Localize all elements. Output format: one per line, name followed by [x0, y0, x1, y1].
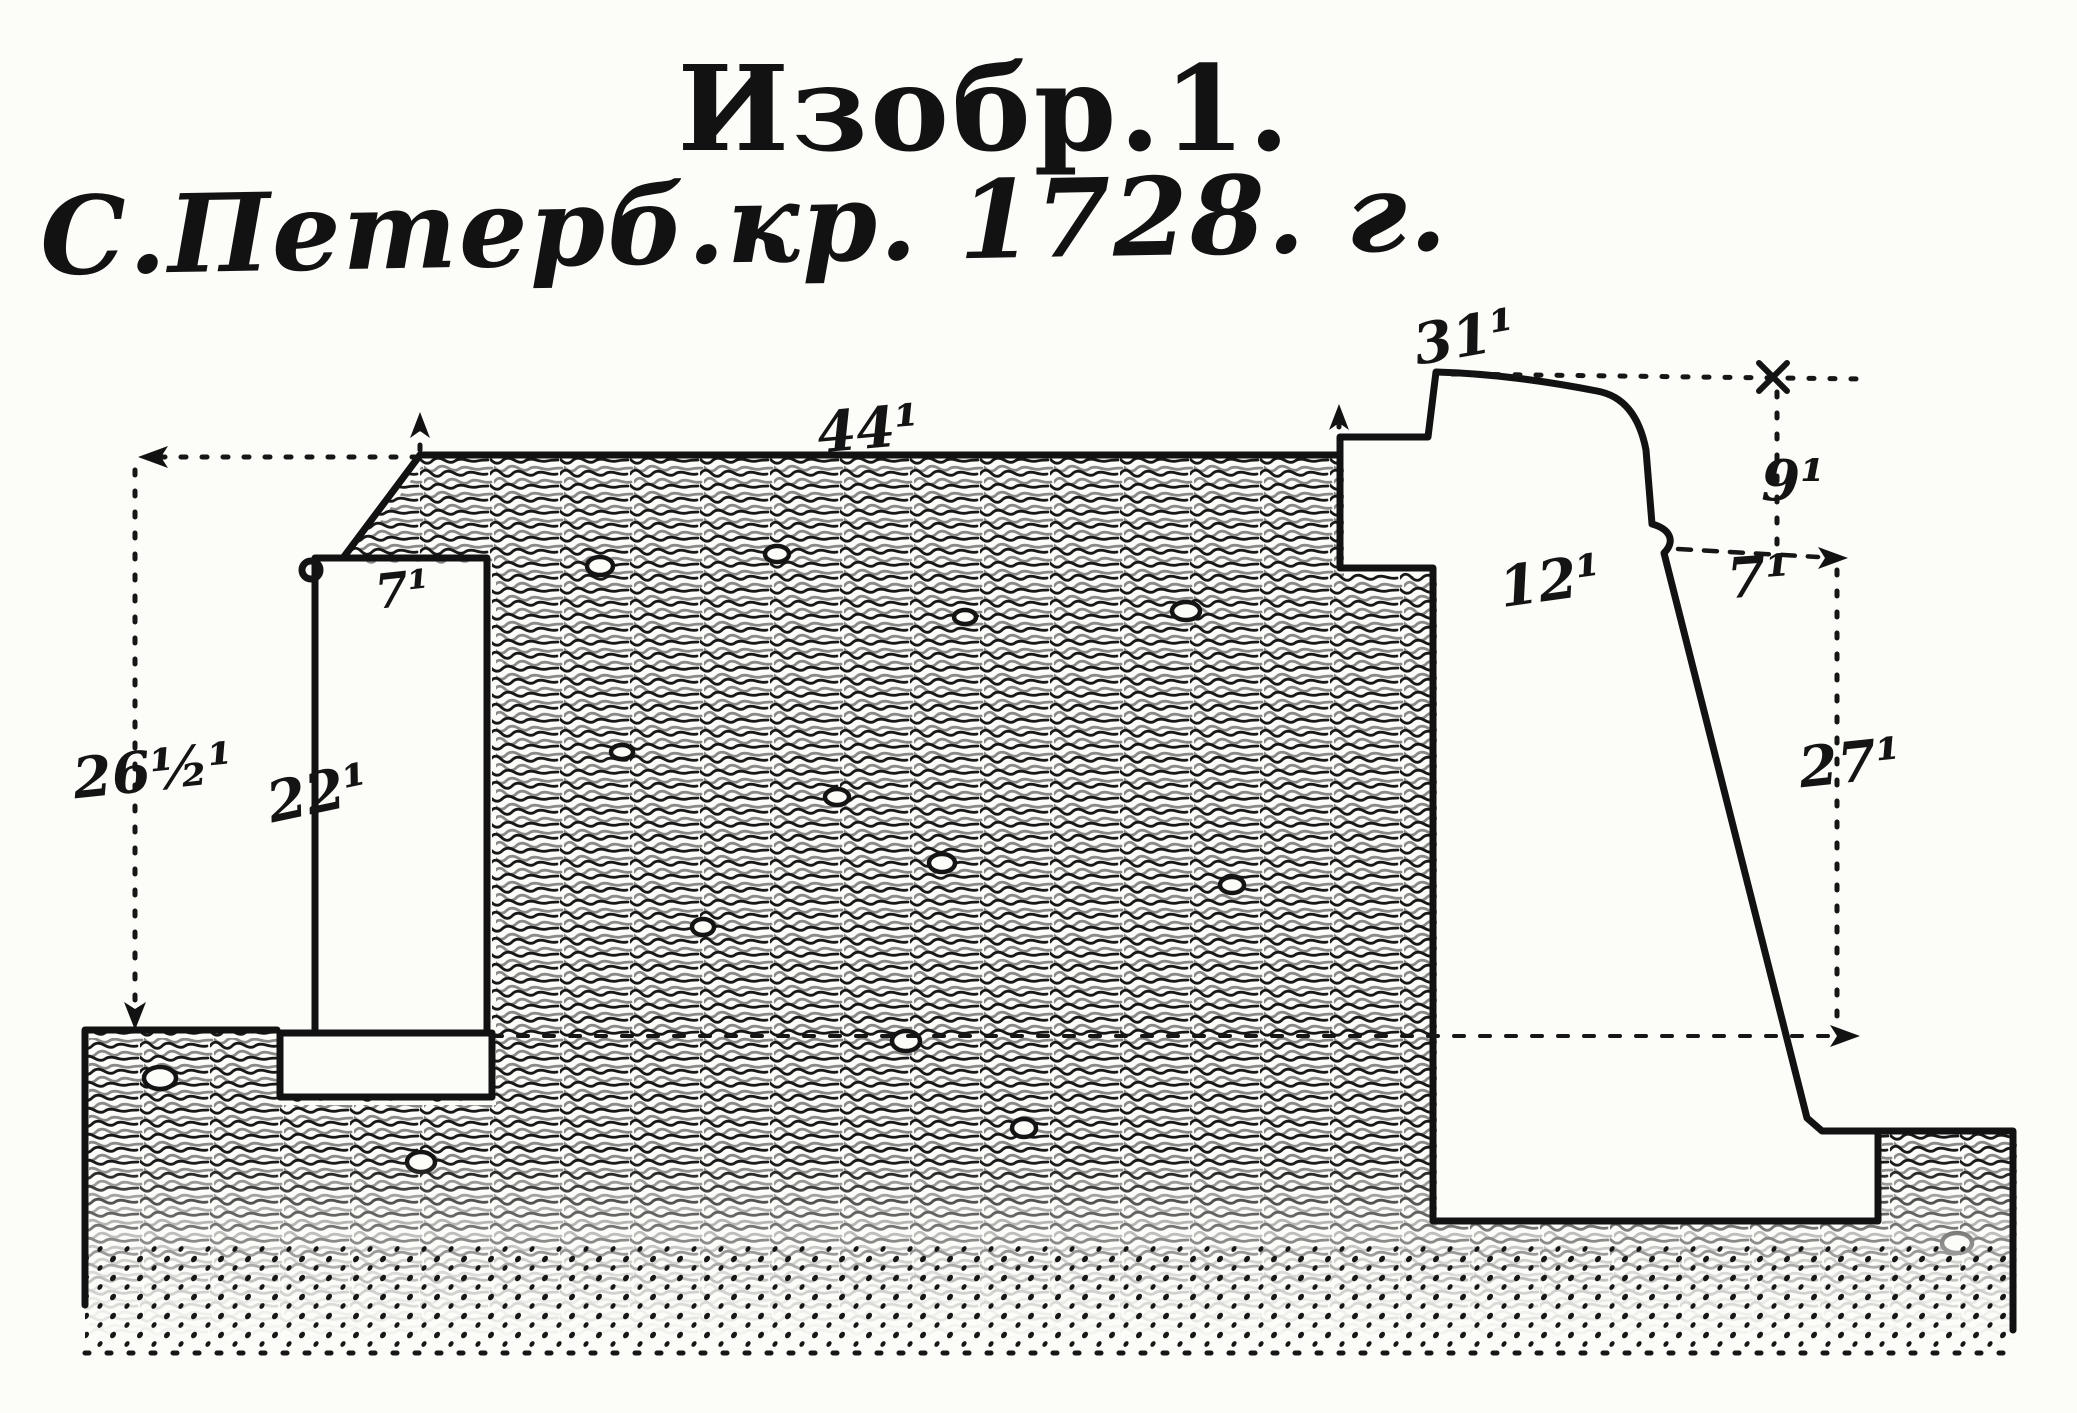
dim-label-ditch-depth: 26½¹: [69, 730, 237, 813]
dim-label-counterscarp-top: 7¹: [372, 559, 432, 620]
arrowhead-up-left-icon: [410, 412, 430, 438]
dim-label-cordon: 7¹: [1725, 542, 1793, 612]
dim-label-escarp-height: 27¹: [1795, 725, 1905, 801]
dim-label-crest: 31¹: [1409, 296, 1521, 379]
arrowhead-down-icon: [124, 1002, 146, 1030]
dim-label-counterscarp-height: 22¹: [260, 750, 375, 836]
dim-label-wall-thickness: 12¹: [1495, 541, 1606, 621]
ground-stipple: [85, 1245, 2013, 1350]
counterscarp-top-nub: [302, 561, 320, 579]
arrowhead-right-ground-icon: [1830, 1025, 1860, 1047]
arrowhead-right-cordon-icon: [1818, 547, 1848, 569]
dim-label-rampart-width: 44¹: [814, 392, 922, 467]
engraving-page: Изобр.1. С.Петерб.кр. 1728. г.: [0, 0, 2077, 1413]
x-mark-icon: [1759, 363, 1787, 391]
fortress-section-drawing: Изобр.1. С.Петерб.кр. 1728. г.: [0, 0, 2077, 1413]
figure-subtitle: С.Петерб.кр. 1728. г.: [39, 150, 1449, 301]
dim-label-parapet-drop: 9¹: [1761, 448, 1825, 514]
counterscarp-footing: [280, 1033, 492, 1097]
